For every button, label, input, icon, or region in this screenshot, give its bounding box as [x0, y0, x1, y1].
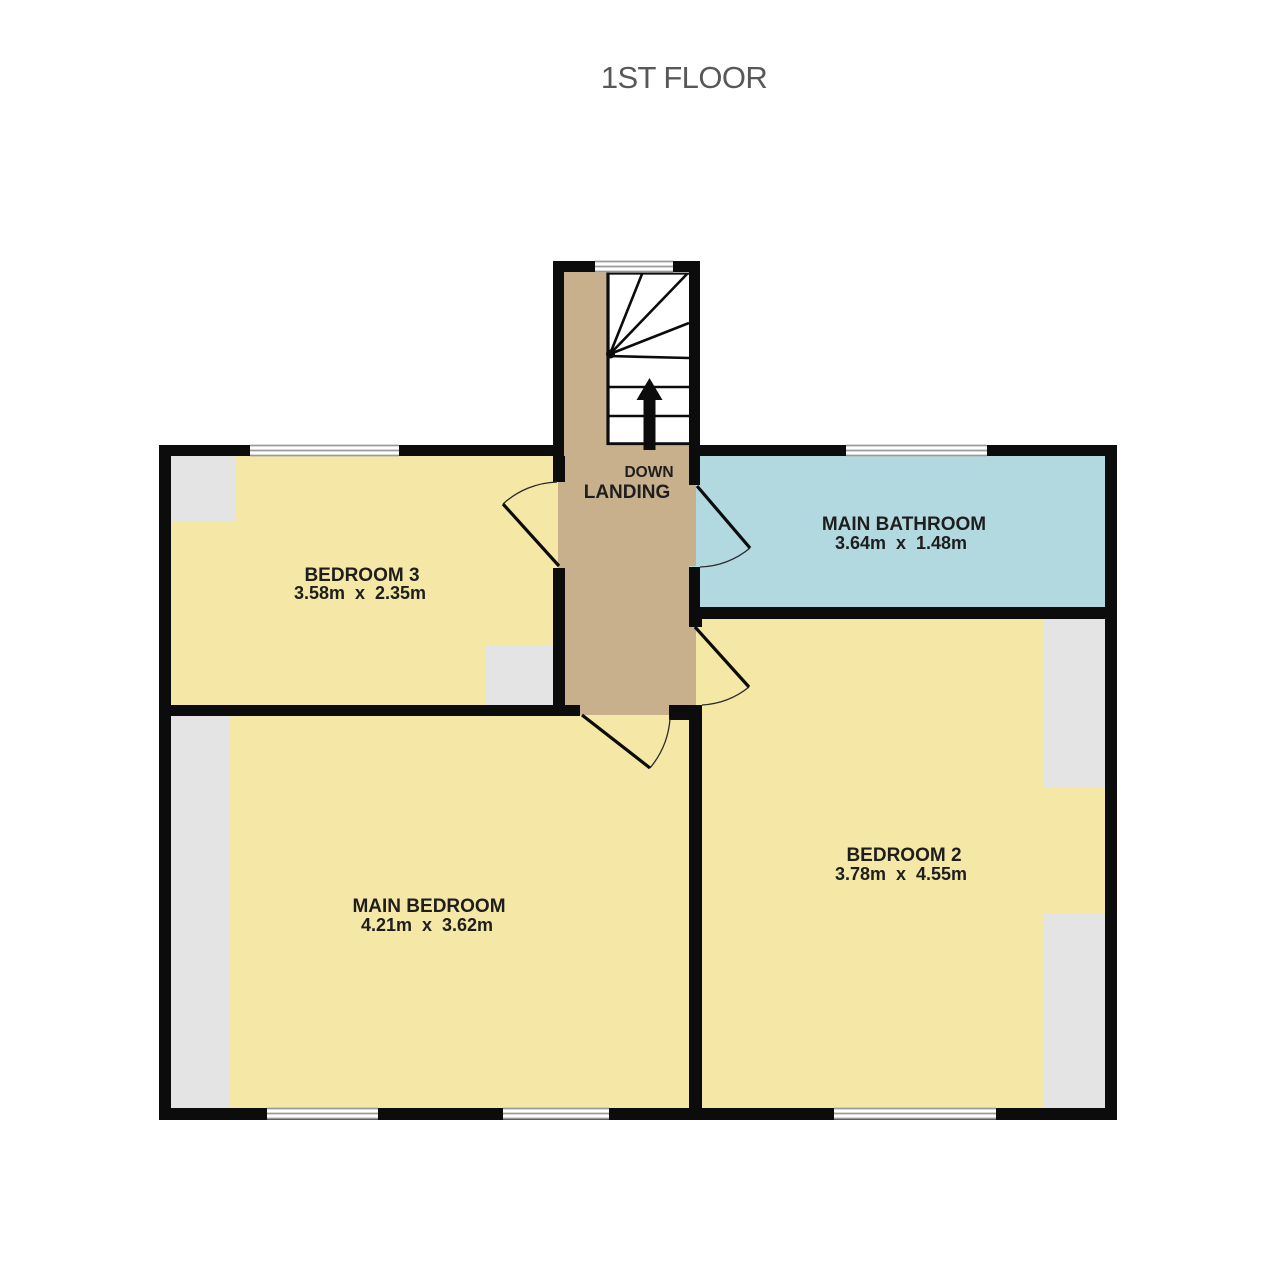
svg-text:MAIN BATHROOM: MAIN BATHROOM	[822, 514, 986, 535]
svg-text:4.21m x 3.62m: 4.21m x 3.62m	[361, 915, 493, 935]
svg-text:1ST FLOOR: 1ST FLOOR	[601, 60, 767, 95]
svg-text:3.78m x 4.55m: 3.78m x 4.55m	[835, 864, 967, 884]
svg-text:DOWN: DOWN	[624, 464, 673, 481]
svg-text:3.64m x 1.48m: 3.64m x 1.48m	[835, 533, 967, 553]
svg-text:MAIN BEDROOM: MAIN BEDROOM	[352, 896, 505, 917]
svg-text:3.58m x 2.35m: 3.58m x 2.35m	[294, 583, 426, 603]
svg-text:LANDING: LANDING	[584, 482, 671, 503]
svg-text:BEDROOM 2: BEDROOM 2	[846, 845, 961, 866]
